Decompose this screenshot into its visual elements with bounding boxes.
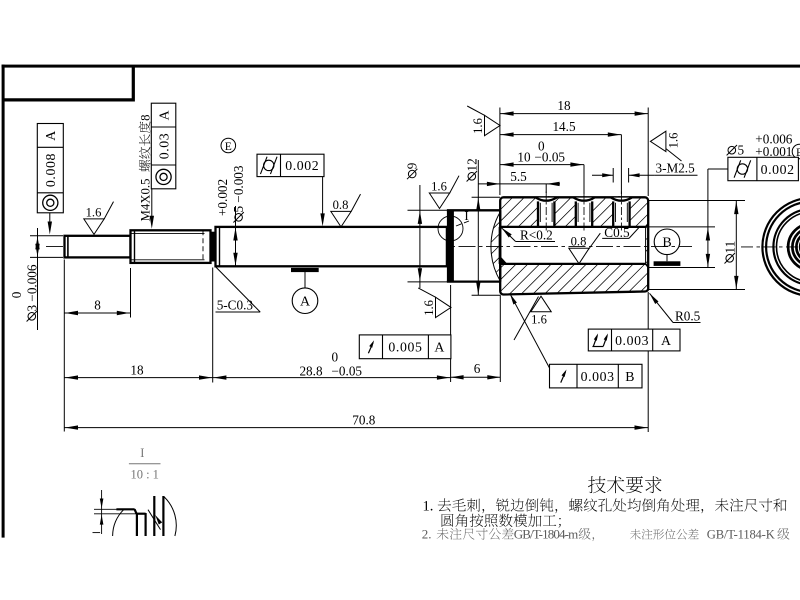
svg-text:0.005: 0.005 (388, 340, 422, 355)
svg-text:0.008: 0.008 (43, 153, 58, 187)
svg-text:11: 11 (722, 241, 737, 254)
svg-text:GB/T-1804-m: GB/T-1804-m (514, 527, 579, 542)
svg-text:9: 9 (405, 162, 420, 169)
svg-text:0.8: 0.8 (571, 235, 587, 249)
svg-text:GB/T-1184-K: GB/T-1184-K (707, 528, 775, 542)
svg-text:0: 0 (332, 349, 339, 364)
svg-text:B: B (662, 236, 671, 251)
svg-text:A: A (661, 333, 672, 348)
svg-text:6: 6 (474, 361, 481, 376)
svg-text:C0.5: C0.5 (604, 225, 630, 240)
svg-text:3-M2.5: 3-M2.5 (656, 160, 696, 175)
svg-text:R<0.2: R<0.2 (520, 228, 553, 243)
svg-text:12: 12 (464, 158, 479, 171)
svg-text:B: B (625, 369, 635, 384)
svg-text:−0.05: −0.05 (535, 150, 566, 165)
svg-text:0.002: 0.002 (285, 158, 319, 173)
svg-text:2.: 2. (422, 527, 432, 542)
svg-text:18: 18 (557, 98, 571, 113)
svg-text:5: 5 (738, 142, 745, 157)
svg-text:3 −0.006: 3 −0.006 (24, 264, 39, 311)
svg-text:8: 8 (139, 114, 153, 120)
svg-text:1.6: 1.6 (431, 180, 447, 194)
svg-text:0.003: 0.003 (581, 369, 615, 384)
svg-text:1.6: 1.6 (667, 133, 681, 149)
svg-text:10 : 1: 10 : 1 (130, 468, 158, 482)
svg-text:A: A (156, 110, 171, 121)
svg-text:A: A (43, 130, 58, 141)
svg-text:1.6: 1.6 (531, 312, 547, 326)
svg-text:0.002: 0.002 (761, 162, 795, 177)
svg-text:−0.05: −0.05 (332, 363, 363, 378)
svg-text:+0.002: +0.002 (215, 179, 230, 216)
svg-text:I: I (140, 446, 144, 460)
svg-text:M4X0.5: M4X0.5 (139, 172, 153, 221)
svg-text:28.8: 28.8 (299, 363, 322, 378)
svg-text:E: E (225, 141, 232, 153)
svg-text:0.03: 0.03 (156, 133, 171, 160)
svg-text:A: A (434, 340, 445, 355)
svg-text:0: 0 (9, 291, 24, 298)
svg-text:5-C0.3: 5-C0.3 (217, 298, 254, 313)
svg-text:8: 8 (94, 298, 101, 313)
svg-text:A: A (300, 295, 311, 310)
svg-text:+0.001: +0.001 (755, 144, 792, 159)
svg-text:1.6: 1.6 (422, 300, 436, 316)
svg-text:5 −0.003: 5 −0.003 (231, 165, 246, 212)
svg-text:5.5: 5.5 (510, 169, 527, 184)
svg-text:1.6: 1.6 (86, 205, 102, 219)
svg-text:14.5: 14.5 (552, 119, 575, 134)
svg-text:18: 18 (130, 362, 144, 377)
svg-text:10: 10 (517, 150, 531, 165)
svg-text:1.: 1. (423, 499, 438, 515)
svg-text:R0.5: R0.5 (675, 309, 701, 324)
svg-text:1.6: 1.6 (471, 118, 485, 134)
svg-text:0.003: 0.003 (615, 333, 649, 348)
svg-text:I: I (464, 208, 468, 223)
svg-text:0.8: 0.8 (333, 198, 349, 212)
svg-text:70.8: 70.8 (352, 412, 375, 427)
